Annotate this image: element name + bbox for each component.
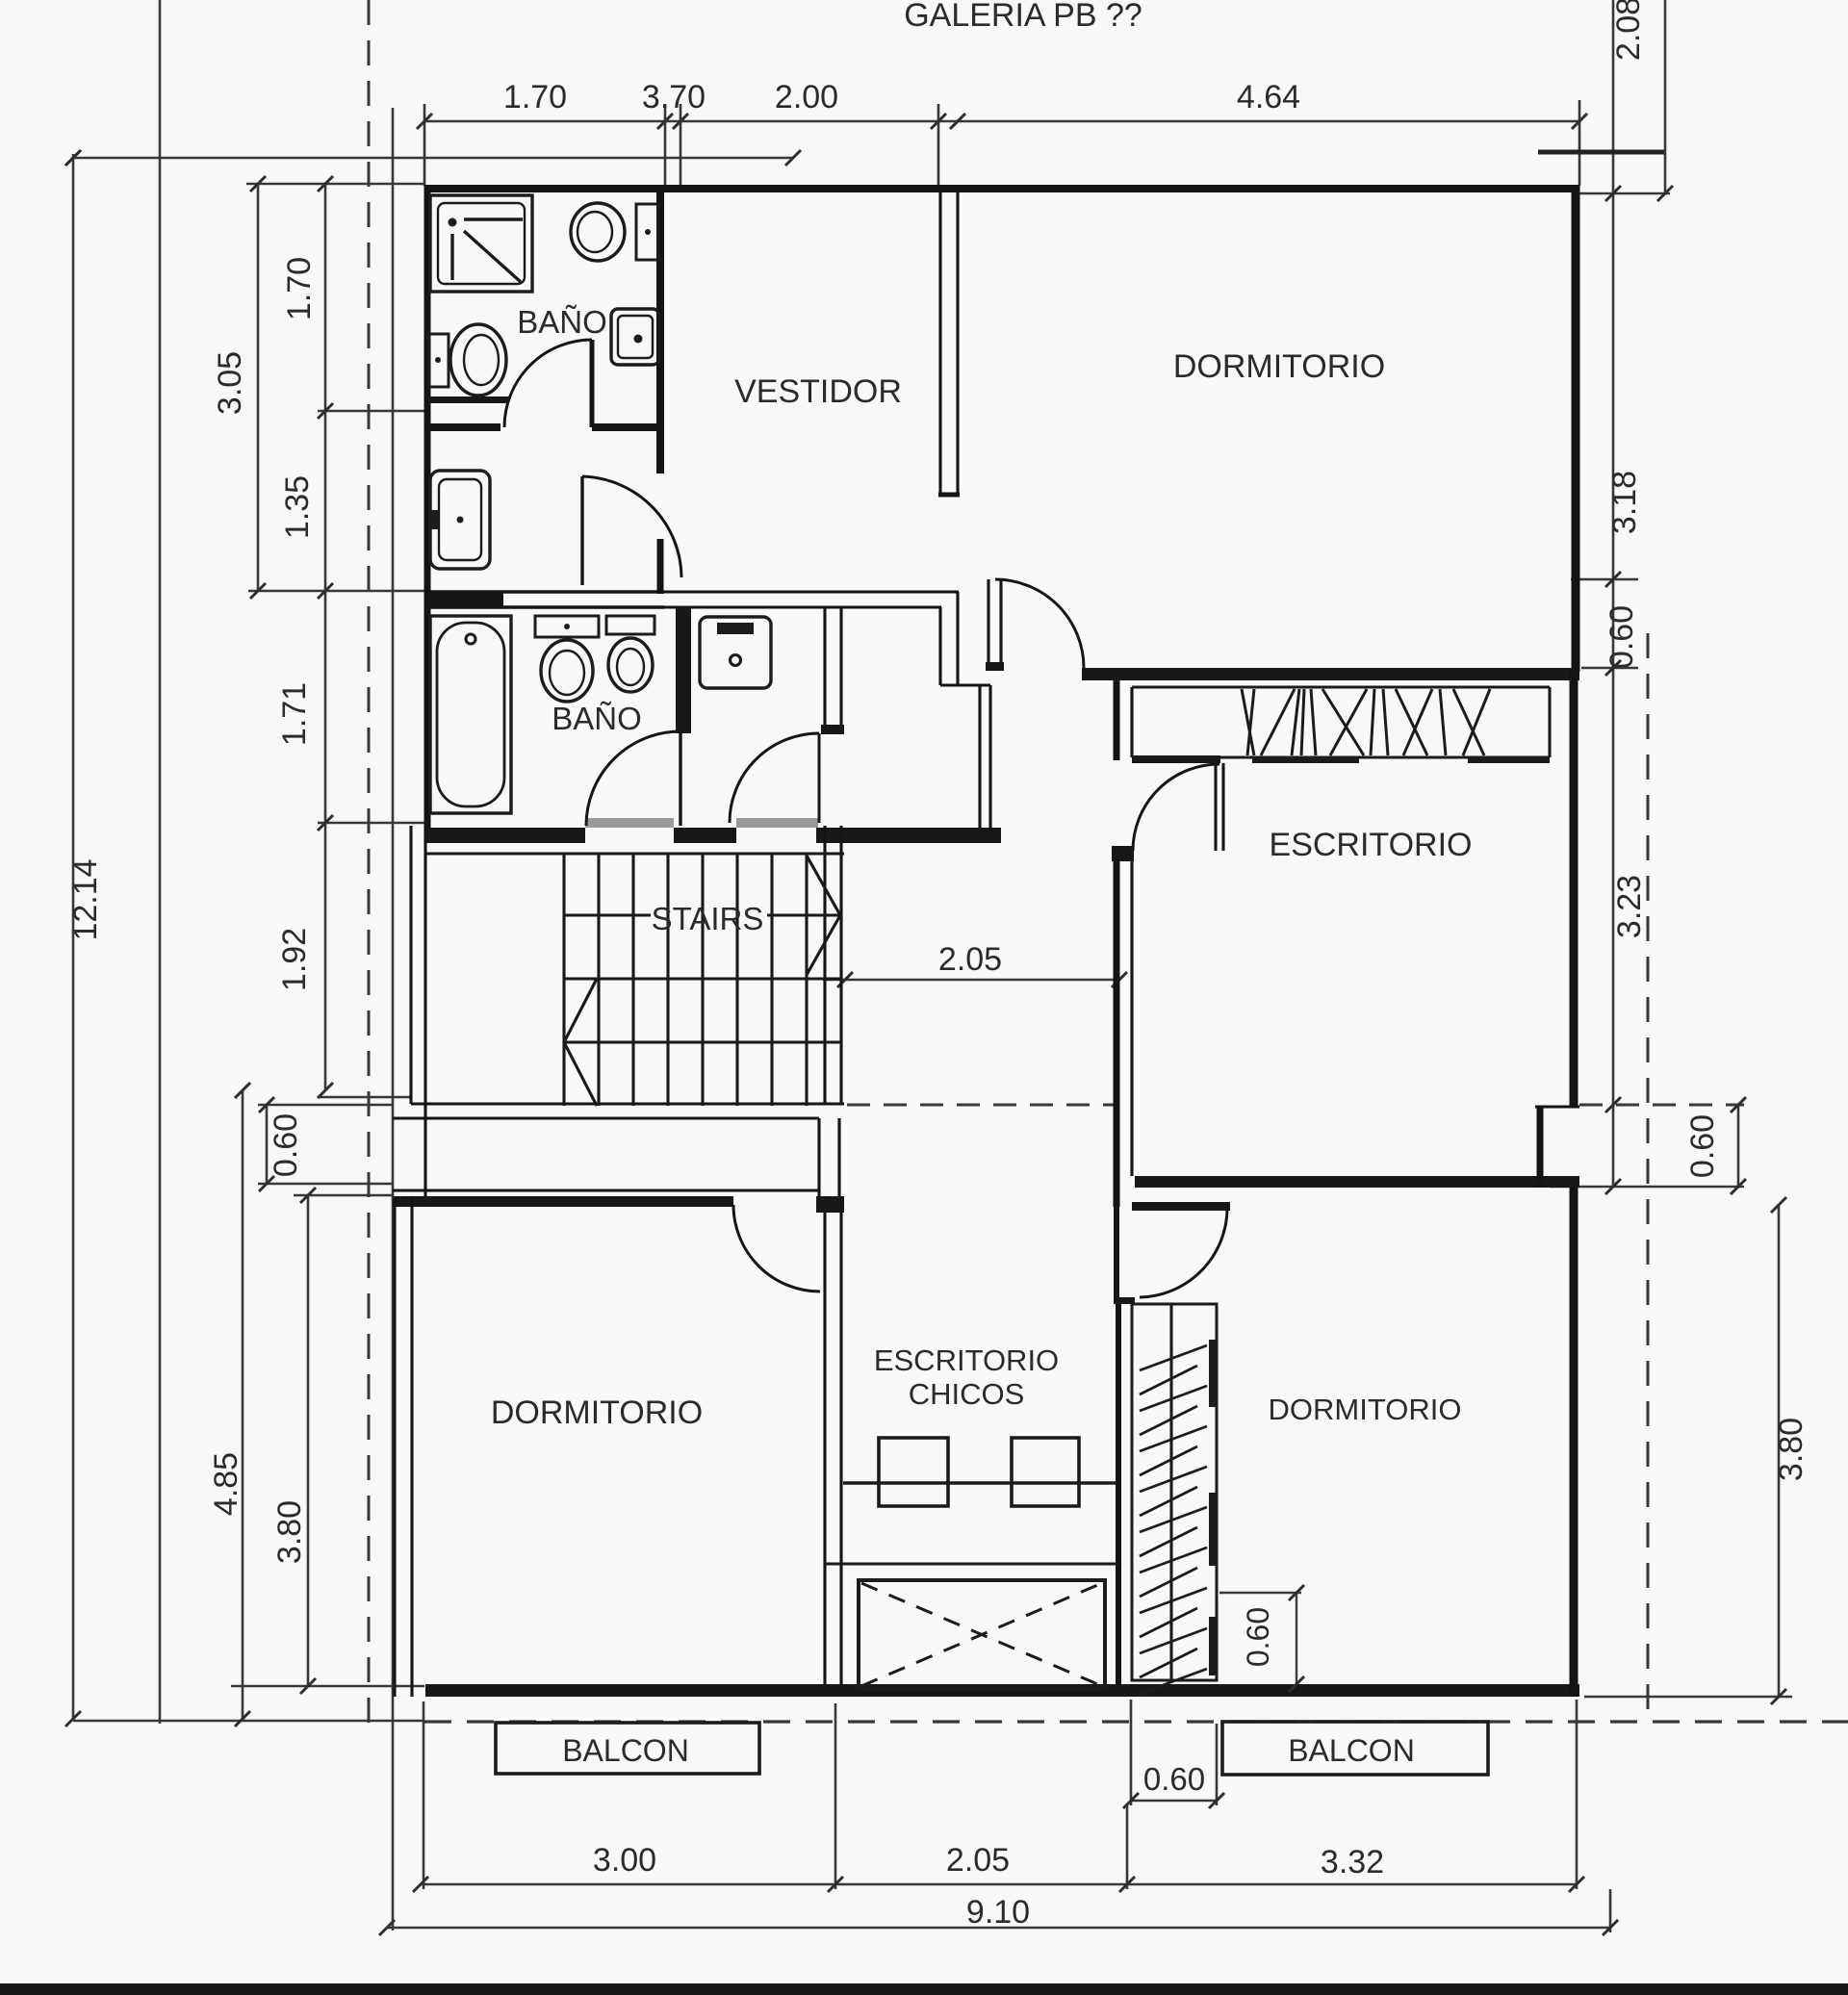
svg-text:2.05: 2.05 (938, 941, 1002, 978)
svg-text:2.08: 2.08 (1610, 0, 1647, 61)
svg-text:DORMITORIO: DORMITORIO (1269, 1393, 1462, 1426)
svg-text:12.14: 12.14 (67, 858, 104, 940)
svg-text:3.70: 3.70 (642, 79, 706, 115)
svg-text:3.18: 3.18 (1606, 471, 1643, 534)
svg-text:DORMITORIO: DORMITORIO (491, 1394, 703, 1431)
svg-text:4.85: 4.85 (208, 1452, 244, 1516)
svg-text:3.80: 3.80 (1773, 1418, 1809, 1481)
svg-text:BALCON: BALCON (562, 1733, 689, 1768)
svg-text:1.35: 1.35 (279, 475, 316, 539)
svg-text:CHICOS: CHICOS (909, 1377, 1025, 1411)
svg-text:1.92: 1.92 (276, 928, 313, 991)
svg-text:0.60: 0.60 (1143, 1761, 1205, 1797)
svg-text:3.23: 3.23 (1611, 875, 1648, 938)
svg-text:2.05: 2.05 (946, 1842, 1010, 1879)
svg-text:3.80: 3.80 (271, 1500, 308, 1564)
svg-text:DORMITORIO: DORMITORIO (1173, 348, 1385, 385)
svg-text:0.60: 0.60 (1684, 1114, 1721, 1178)
svg-text:3.00: 3.00 (593, 1842, 656, 1879)
svg-text:1.71: 1.71 (276, 682, 313, 746)
svg-text:2.00: 2.00 (775, 79, 838, 115)
svg-text:0.60: 0.60 (1241, 1607, 1275, 1667)
svg-text:0.60: 0.60 (268, 1113, 304, 1177)
svg-text:BAÑO: BAÑO (552, 701, 642, 736)
svg-text:4.64: 4.64 (1237, 79, 1300, 115)
svg-text:1.70: 1.70 (281, 257, 318, 320)
svg-text:3.05: 3.05 (212, 351, 248, 415)
svg-text:ESCRITORIO: ESCRITORIO (874, 1343, 1059, 1377)
svg-text:0.60: 0.60 (1604, 605, 1640, 669)
svg-text:1.70: 1.70 (503, 79, 567, 115)
svg-text:GALERIA PB ??: GALERIA PB ?? (904, 0, 1142, 34)
svg-text:VESTIDOR: VESTIDOR (734, 373, 902, 410)
svg-text:ESCRITORIO: ESCRITORIO (1270, 827, 1473, 863)
svg-text:3.32: 3.32 (1321, 1844, 1384, 1880)
svg-text:BAÑO: BAÑO (517, 304, 607, 340)
svg-text:9.10: 9.10 (966, 1894, 1030, 1931)
svg-text:STAIRS: STAIRS (652, 901, 764, 936)
svg-text:BALCON: BALCON (1288, 1733, 1415, 1768)
